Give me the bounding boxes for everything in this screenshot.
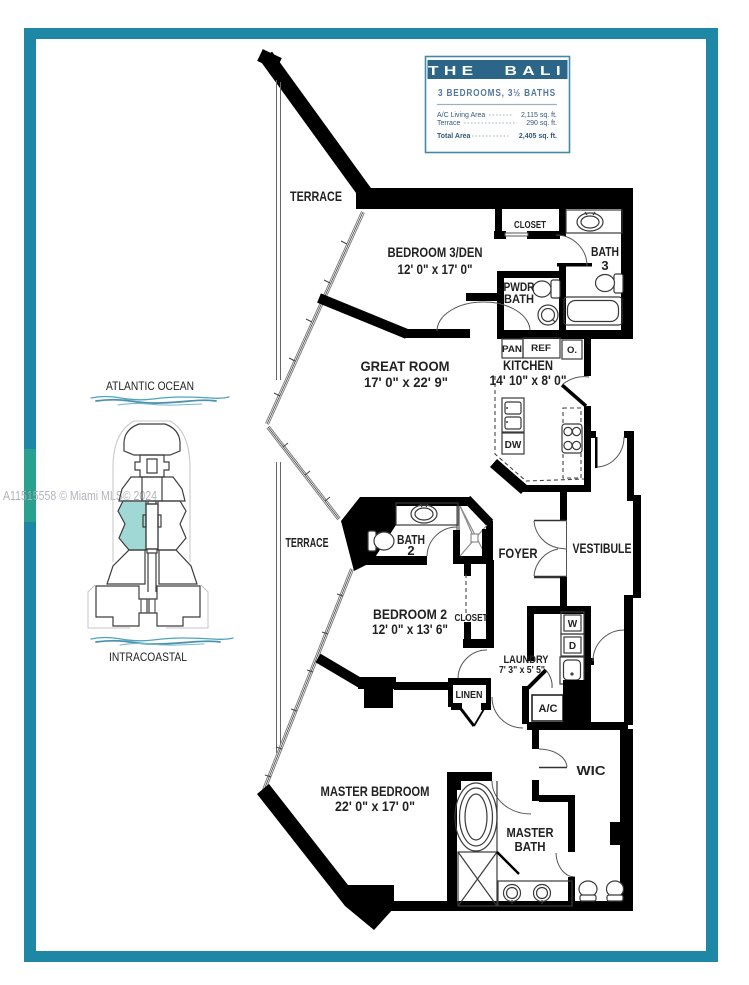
svg-text:22' 0" x 17' 0": 22' 0" x 17' 0" — [335, 798, 415, 814]
svg-text:BATH: BATH — [504, 292, 534, 306]
svg-text:12' 0" x 13' 6": 12' 0" x 13' 6" — [372, 621, 448, 637]
svg-text:A/C: A/C — [539, 703, 558, 715]
svg-text:12' 0" x 17' 0": 12' 0" x 17' 0" — [398, 261, 473, 277]
svg-text:PAN: PAN — [502, 344, 522, 355]
svg-text:KITCHEN: KITCHEN — [503, 357, 553, 373]
svg-text:FOYER: FOYER — [499, 545, 538, 561]
svg-text:290 sq. ft.: 290 sq. ft. — [526, 120, 557, 127]
svg-text:2,405 sq. ft.: 2,405 sq. ft. — [519, 133, 557, 140]
svg-text:INTRACOASTAL: INTRACOASTAL — [109, 652, 188, 664]
svg-text:O.: O. — [567, 345, 577, 356]
svg-text:D: D — [569, 641, 576, 652]
svg-text:2,115 sq. ft.: 2,115 sq. ft. — [521, 112, 557, 119]
svg-text:3: 3 — [601, 258, 608, 273]
svg-text:DW: DW — [505, 440, 522, 451]
svg-text:CLOSET: CLOSET — [455, 613, 488, 624]
svg-text:ATLANTIC OCEAN: ATLANTIC OCEAN — [106, 381, 194, 393]
svg-text:3 BEDROOMS, 3½ BATHS: 3 BEDROOMS, 3½ BATHS — [438, 88, 556, 99]
svg-text:THE BALI: THE BALI — [428, 63, 566, 78]
svg-text:W: W — [568, 619, 578, 630]
svg-text:VESTIBULE: VESTIBULE — [573, 540, 632, 556]
svg-text:Total Area: Total Area — [437, 133, 471, 140]
svg-text:TERRACE: TERRACE — [290, 188, 342, 204]
svg-text:CLOSET: CLOSET — [514, 219, 546, 231]
svg-text:BATH: BATH — [591, 244, 619, 259]
svg-text:BATH: BATH — [515, 839, 546, 854]
svg-text:TERRACE: TERRACE — [286, 536, 329, 550]
svg-text:WIC: WIC — [577, 763, 607, 778]
svg-text:Terrace: Terrace — [437, 120, 460, 127]
svg-text:17' 0" x 22' 9": 17' 0" x 22' 9" — [364, 374, 448, 390]
svg-text:MASTER BEDROOM: MASTER BEDROOM — [321, 783, 430, 799]
svg-text:LINEN: LINEN — [456, 690, 483, 701]
svg-text:7' 3" x 5' 5": 7' 3" x 5' 5" — [499, 665, 545, 676]
svg-text:GREAT ROOM: GREAT ROOM — [361, 358, 450, 374]
svg-text:2: 2 — [407, 543, 414, 558]
svg-text:BEDROOM 3/DEN: BEDROOM 3/DEN — [388, 244, 483, 260]
svg-text:BEDROOM 2: BEDROOM 2 — [373, 606, 447, 622]
svg-text:MASTER: MASTER — [507, 825, 555, 840]
svg-text:REF: REF — [531, 343, 551, 354]
svg-text:14' 10" x 8' 0": 14' 10" x 8' 0" — [490, 372, 567, 388]
svg-text:A/C Living Area: A/C Living Area — [437, 112, 485, 119]
